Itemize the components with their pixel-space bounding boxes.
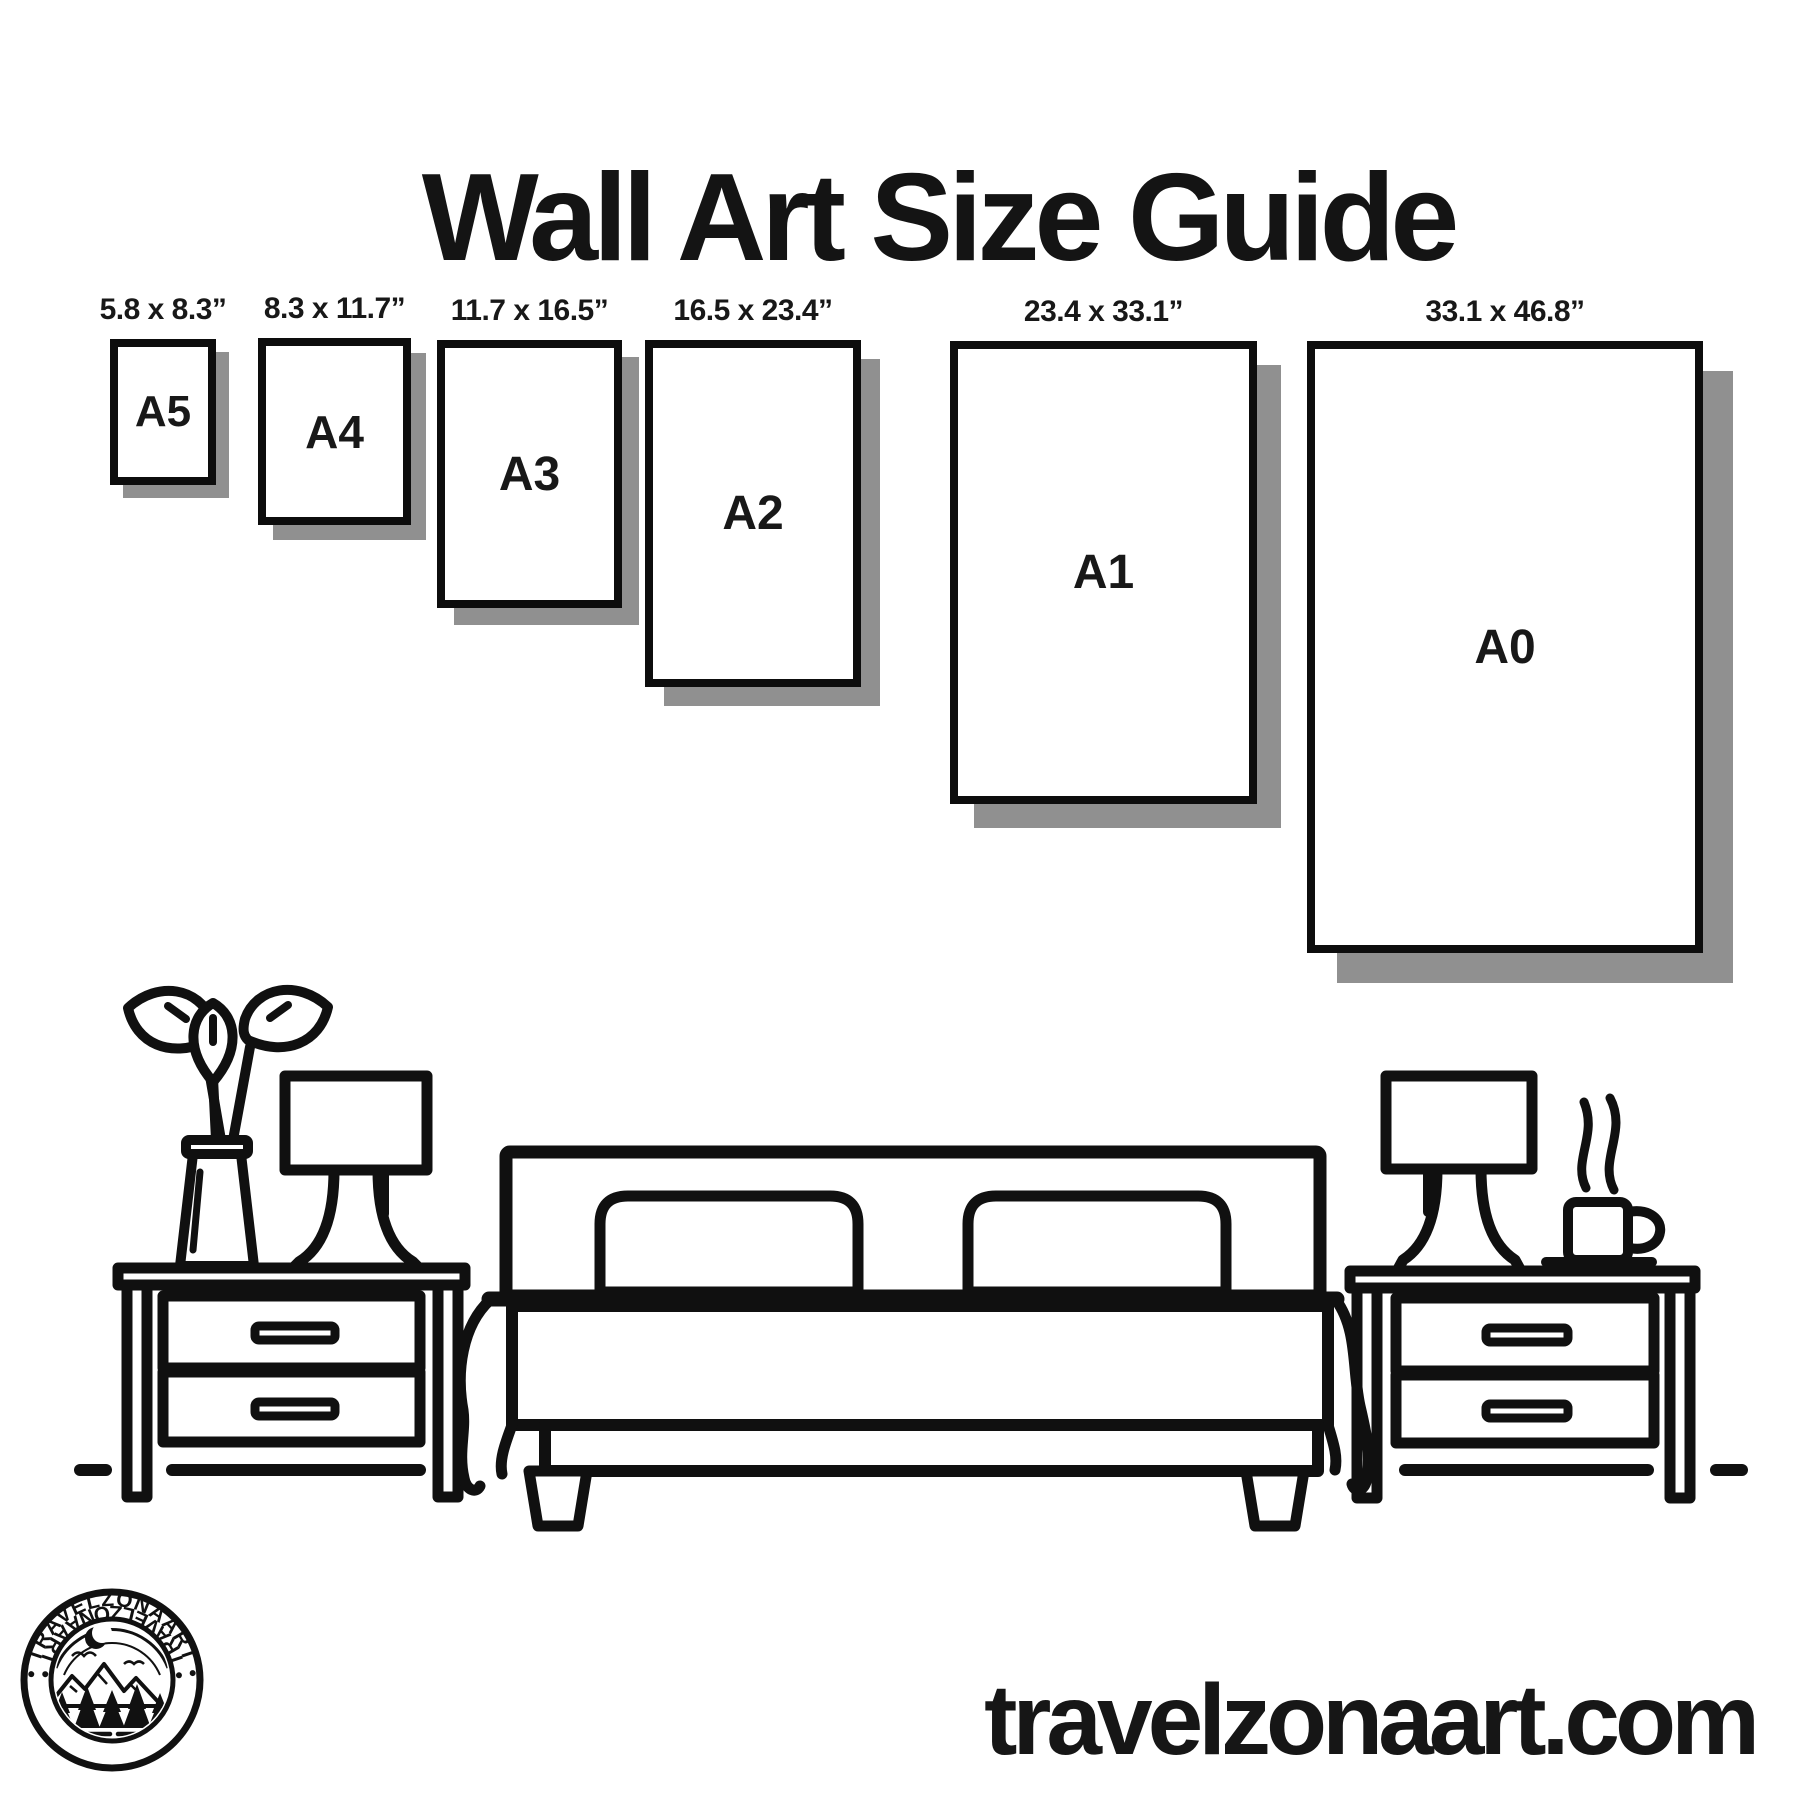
double-bed (460, 1152, 1368, 1526)
nightstand-left (118, 1268, 465, 1497)
steam-icon (1582, 1102, 1589, 1188)
blanket-drape-left (460, 1300, 490, 1490)
bedroom-illustration (0, 0, 1800, 1800)
blanket (512, 1306, 1328, 1425)
poster-canvas: Wall Art Size Guide 5.8 x 8.3” A5 8.3 x … (0, 0, 1800, 1800)
bed-foot-right (1246, 1471, 1304, 1526)
brand-logo: • TRAVELZONAART • • TRAVELZONAART • (12, 1580, 212, 1780)
pillow-left (600, 1196, 858, 1292)
nightstand-right (1350, 1271, 1695, 1498)
website-url: travelzonaart.com (984, 1663, 1755, 1778)
table-lamp-right (1386, 1076, 1532, 1271)
steam-icon (1609, 1098, 1616, 1190)
pillow-right (968, 1196, 1226, 1292)
bed-foot-left (529, 1471, 587, 1526)
steaming-coffee-mug (1546, 1098, 1660, 1262)
bed-base (545, 1425, 1318, 1471)
table-lamp-left (285, 1076, 427, 1268)
